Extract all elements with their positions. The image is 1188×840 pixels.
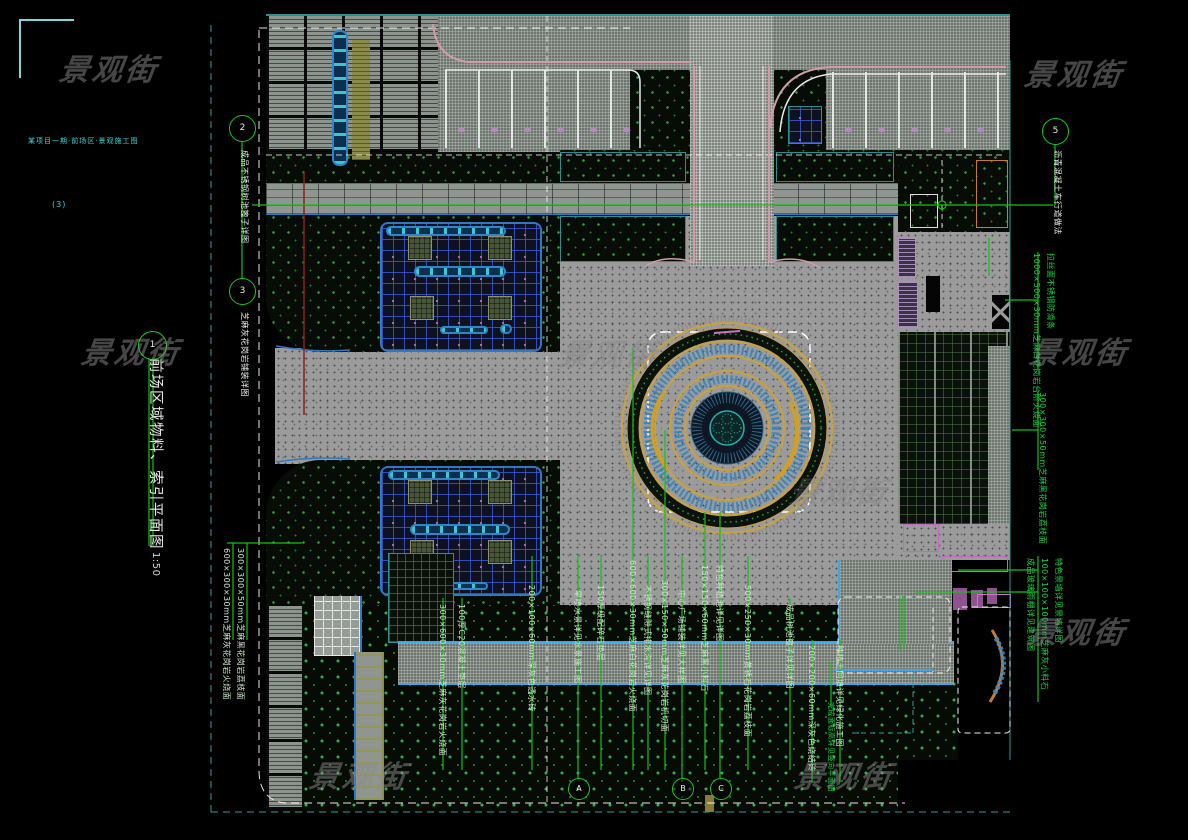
bubble-label: 2 xyxy=(240,124,246,133)
detail-bubble: 2 xyxy=(229,115,256,142)
watermark: 景观街 xyxy=(1027,328,1132,372)
detail-bubble: 5 xyxy=(1042,118,1069,145)
callout: 500×250×30mm黄锈石花岗岩荔枝面 xyxy=(743,585,751,737)
drawing-title: 前场区域物料、索引平面图 xyxy=(148,358,163,550)
sheet-note: 某项目一期·前场区·景观施工图 xyxy=(28,136,138,146)
callout: 拉丝面不锈钢防滑条 xyxy=(1046,253,1054,330)
detail-bubble: C xyxy=(710,778,732,800)
watermark: 景观街 xyxy=(1025,608,1130,652)
watermark: 景观街 xyxy=(79,328,184,372)
marker-label: 沥青混凝土车行道做法 xyxy=(1053,150,1061,235)
callout: 成品树池篦子详见详图 xyxy=(785,604,793,689)
detail-bubble: 3 xyxy=(229,278,256,305)
callout: 300×300×50mm芝麻黑花岗岩荔枝面 xyxy=(1038,392,1046,544)
watermark: 景观街 xyxy=(1022,50,1127,94)
callout: 150厚级配碎石垫层 xyxy=(596,585,604,661)
callout: 特色种植池详见详图 xyxy=(715,565,723,642)
marker-label: 成品不锈钢树池篦子详图 xyxy=(240,150,248,244)
sheet-note-2: (3) xyxy=(52,200,66,209)
callout: 600×600×30mm芝麻白花岗岩火烧面 xyxy=(628,560,636,712)
callout: 种植土回填详见绿化施工图 xyxy=(835,645,843,747)
detail-bubble: B xyxy=(672,778,694,800)
callout: 200×100×60mm深灰色透水砖 xyxy=(527,585,535,712)
callout: 旱喷水景详见水景施工图 xyxy=(573,590,581,684)
callout: 300×300×50mm芝麻黑花岗岩荔枝面 xyxy=(236,548,244,700)
watermark: 景观街 xyxy=(307,752,412,796)
cad-canvas: 1 2 3 5 A B C 前场区域物料、索引平面图 1:50 成品不锈钢树池篦… xyxy=(0,0,1188,840)
callout: 300×600×30mm芝麻灰花岗岩火烧面 xyxy=(438,604,446,756)
drawing-scale: 1:50 xyxy=(150,552,160,576)
marker-label: 芝麻灰花岗岩铺装详图 xyxy=(240,312,248,397)
plan-linework xyxy=(0,0,1188,840)
callout: 150×150×60mm芝麻黑小料石 xyxy=(700,565,708,692)
bubble-label: A xyxy=(576,785,581,793)
callout: 不锈钢缝隙式排水沟详见详图 xyxy=(643,585,651,696)
callout: 100厚C20混凝土垫层 xyxy=(457,604,465,689)
bubble-label: 5 xyxy=(1053,127,1059,136)
bubble-label: B xyxy=(680,785,686,793)
callout: 中心广场铺装详见大样图 xyxy=(677,590,685,684)
callout: 600×300×30mm芝麻灰花岗岩火烧面 xyxy=(222,548,230,700)
watermark: 景观街 xyxy=(57,45,162,89)
detail-bubble: A xyxy=(568,778,590,800)
watermark: 景观街 xyxy=(557,330,662,374)
watermark: 景观街 xyxy=(792,752,897,796)
watermark: 景观街 xyxy=(787,468,892,512)
bubble-label: C xyxy=(718,785,724,793)
bubble-label: 3 xyxy=(240,287,246,296)
callout: 300×150×50mm芝麻灰花岗岩机切面 xyxy=(660,580,668,732)
